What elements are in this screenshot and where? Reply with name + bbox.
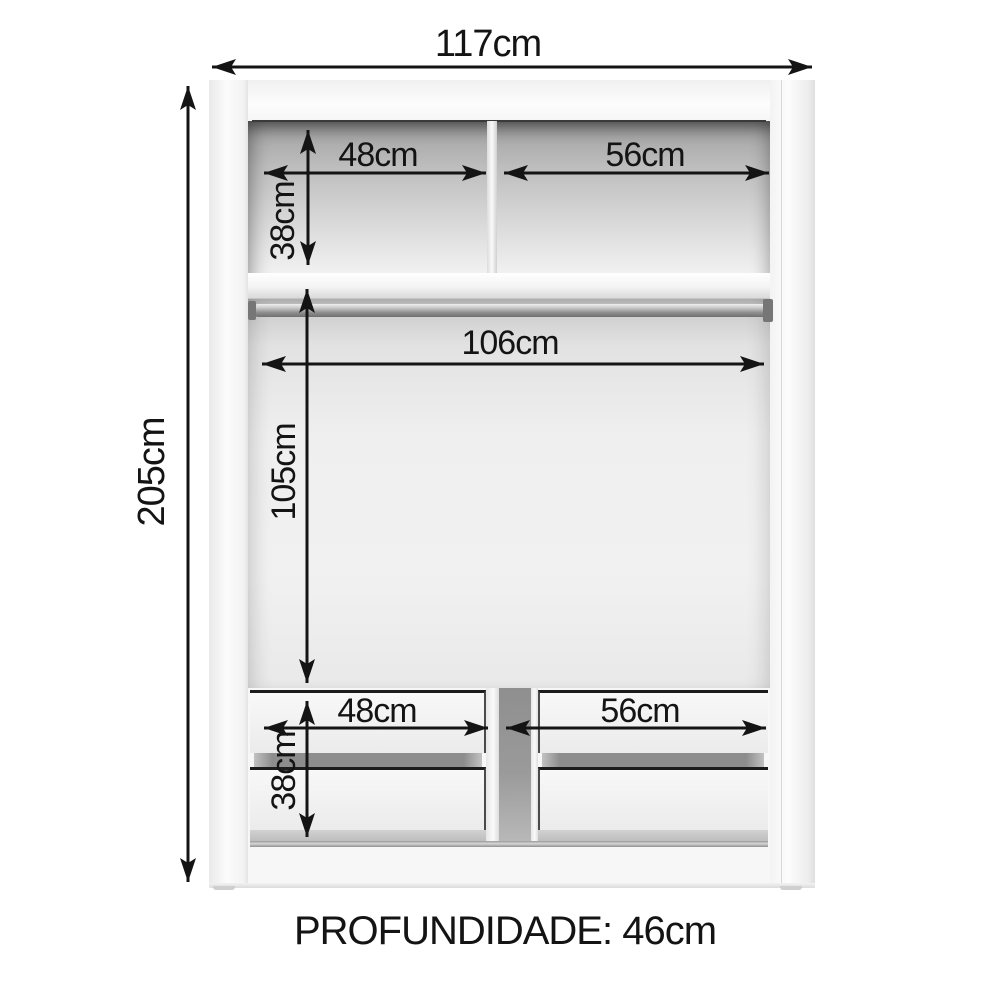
dim-top-shelf-left-label: 48cm [338,138,417,172]
foot-left [213,886,235,890]
wardrobe-bottom-edge [209,883,815,888]
dim-overall-width-label: 117cm [435,25,541,63]
depth-label: PROFUNDIDADE: 46cm [294,911,716,951]
drawer-right-gap [542,753,764,767]
upper-compartment-divider [487,121,497,273]
shelf [248,273,770,299]
base-rail [250,841,768,847]
wardrobe-dimension-diagram: 117cm 205cm 48cm 56cm 38cm 106cm 105cm 4… [0,0,1000,1000]
dim-drawers-height-label: 38cm [267,731,301,810]
drawer-divider-recess [499,688,531,841]
drawer-right-bottom [538,767,768,830]
wardrobe-left-panel [209,80,248,888]
hanging-rod [252,304,770,317]
drawer-left-lower-shadow [250,830,486,841]
dim-rod-width-label: 106cm [461,326,558,360]
dim-hanging-height-label: 105cm [267,423,301,520]
rod-bracket-left [248,301,256,320]
upper-compartment-front-edge [252,120,766,122]
wardrobe-right-panel [770,80,815,888]
rod-bracket-right [763,299,773,322]
drawer-divider-post-left [486,688,499,841]
dim-drawers-left-label: 48cm [337,694,416,728]
foot-right [780,886,802,890]
dim-top-shelf-right-label: 56cm [605,138,684,172]
right-panel-front-edge [781,80,782,886]
wardrobe-top-panel [209,80,815,121]
dim-drawers-right-label: 56cm [600,694,679,728]
dim-top-shelf-height-label: 38cm [266,181,300,260]
upper-compartment-back [248,121,770,273]
drawer-right-lower-shadow [538,830,768,841]
dim-overall-height-label: 205cm [133,417,171,526]
drawer-divider-post-right [531,688,538,841]
